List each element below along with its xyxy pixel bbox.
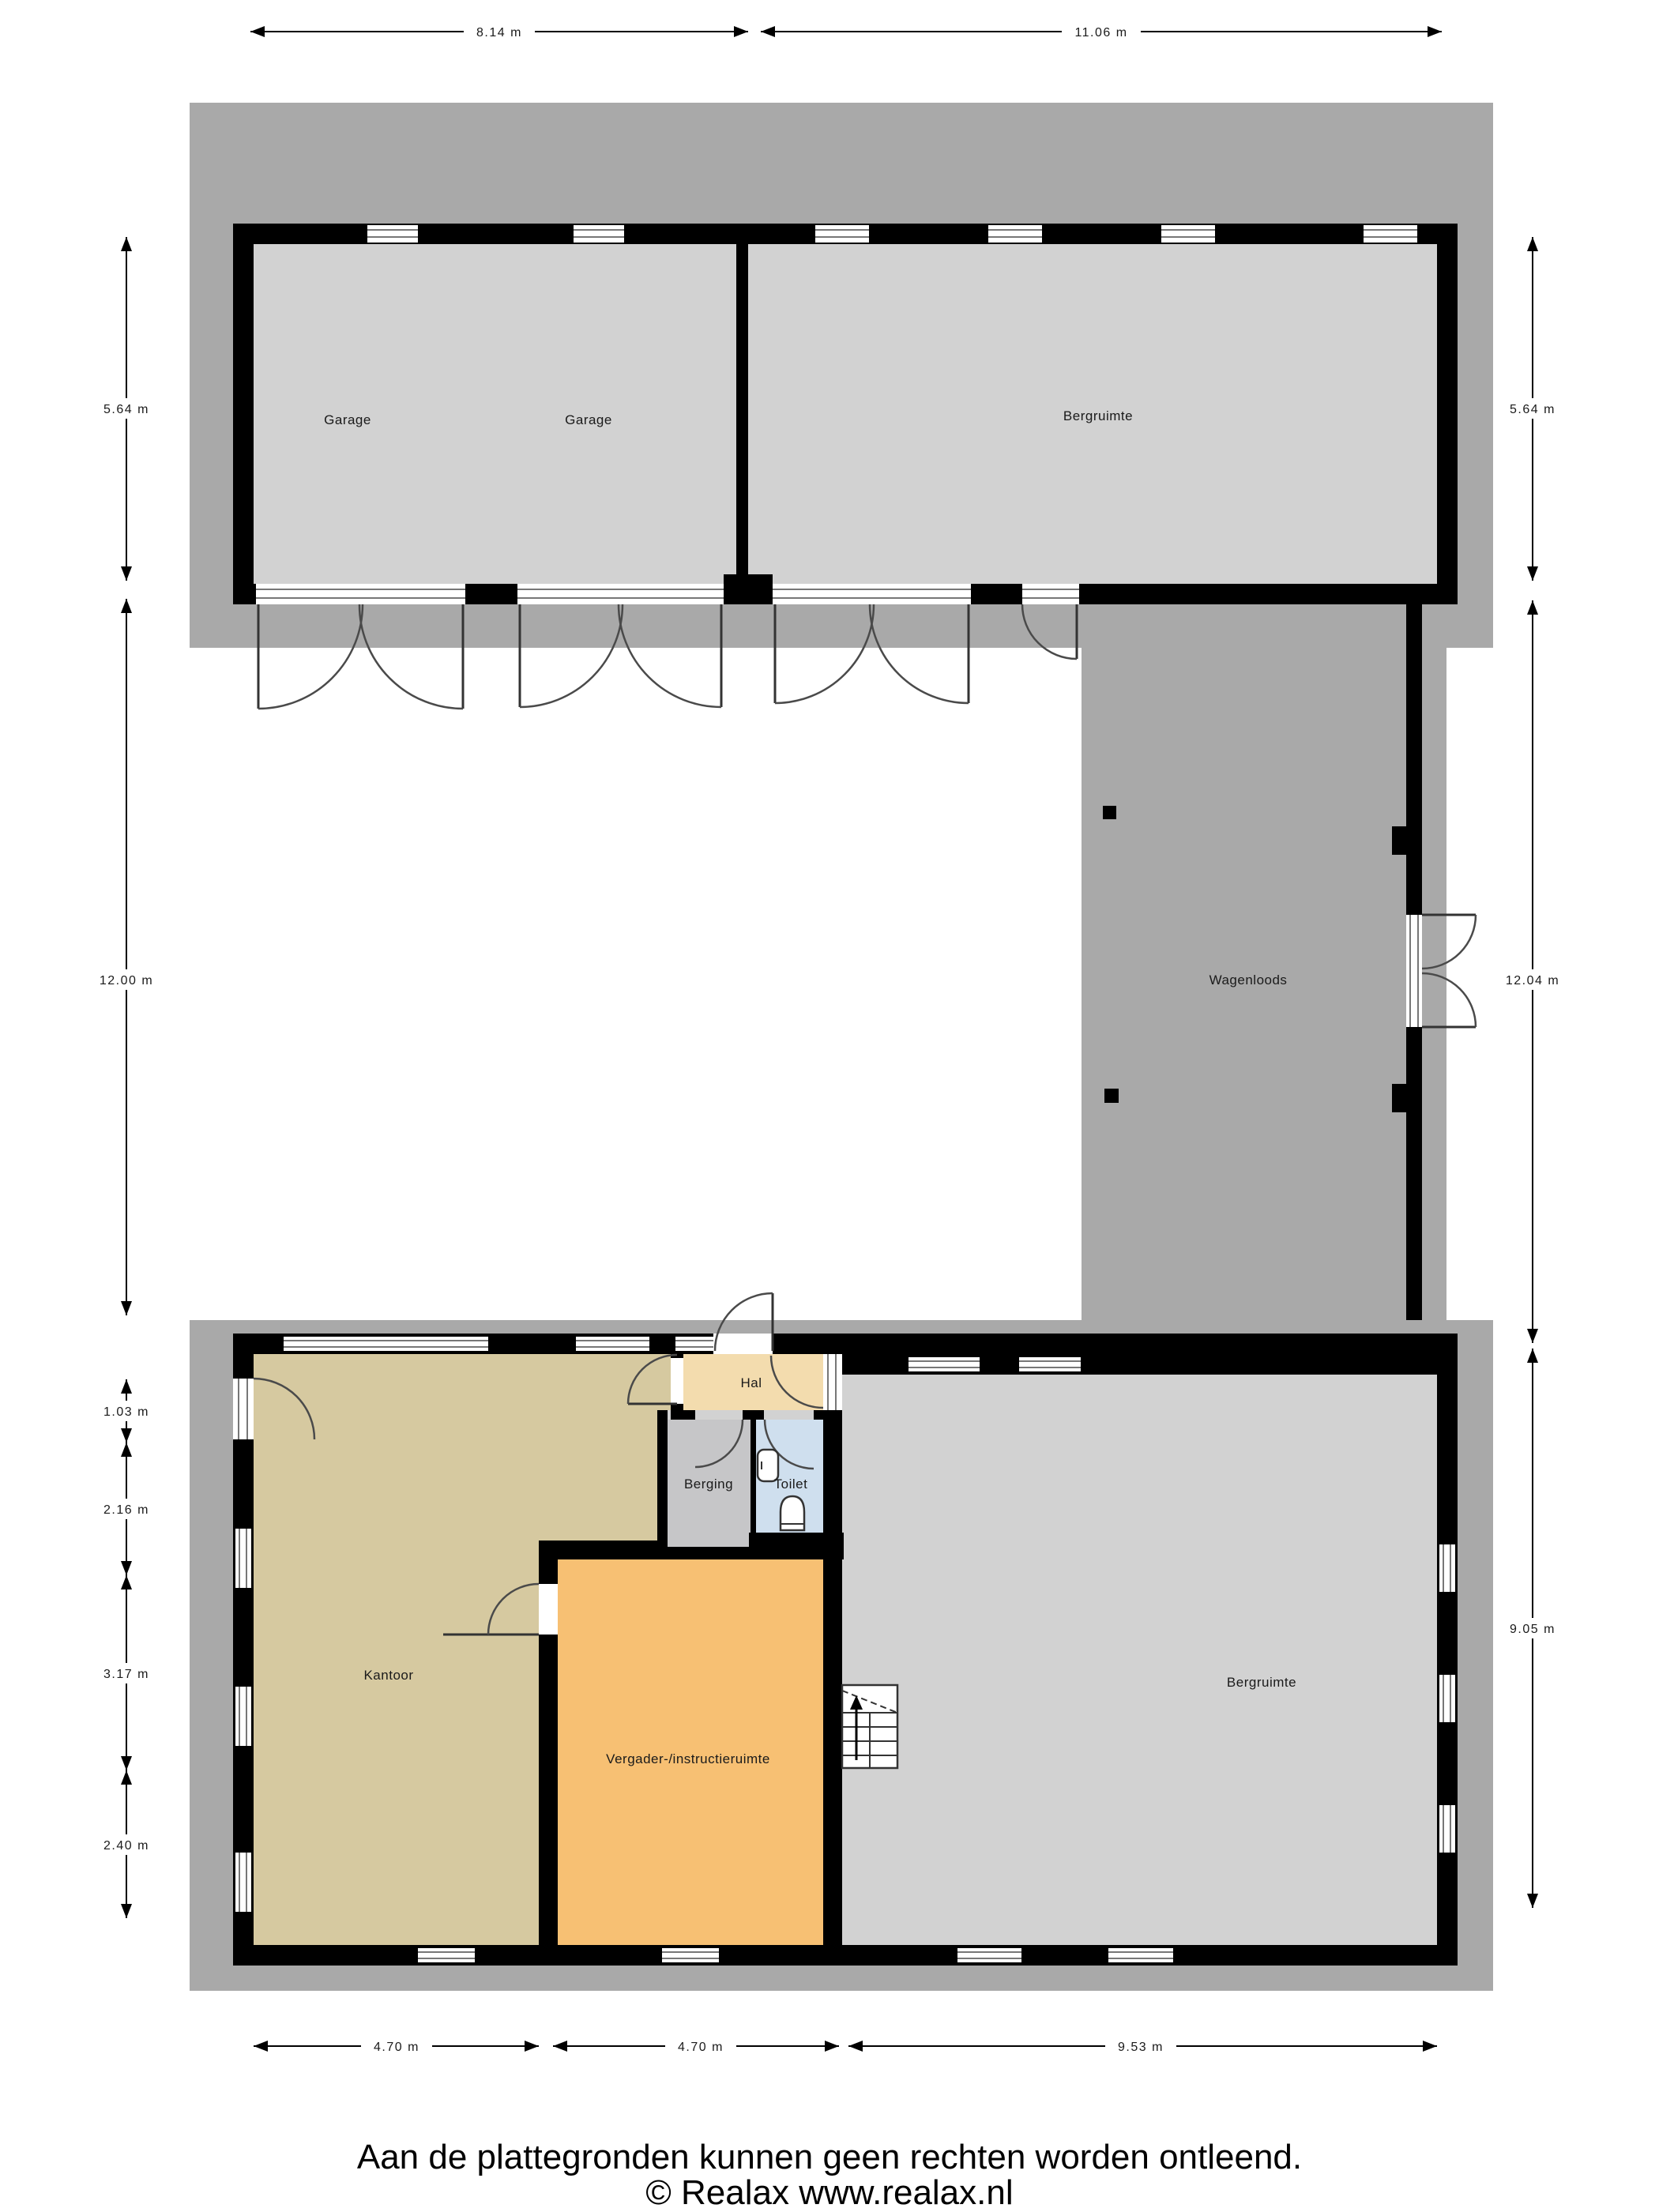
window xyxy=(367,225,418,243)
label-bergruimte-top: Bergruimte xyxy=(1063,408,1133,423)
window xyxy=(1019,1357,1081,1371)
dim-left-2: 12.00 m xyxy=(87,599,166,1315)
svg-text:3.17 m: 3.17 m xyxy=(103,1668,149,1681)
footer-disclaimer: Aan de plattegronden kunnen geen rechten… xyxy=(357,2138,1302,2176)
window xyxy=(1108,1948,1173,1962)
svg-text:4.70 m: 4.70 m xyxy=(374,2041,419,2054)
dim-right-3: 9.05 m xyxy=(1497,1349,1568,1908)
divider-wall-garage-bergruimte xyxy=(736,244,748,584)
dim-left-6: 2.40 m xyxy=(91,1770,162,1918)
dim-left-3: 1.03 m xyxy=(91,1379,162,1443)
toilet-bowl xyxy=(781,1496,804,1530)
svg-text:2.16 m: 2.16 m xyxy=(103,1503,149,1517)
floorplan-page: Garage Garage Bergruimte Wagenloods Hal … xyxy=(0,0,1659,2212)
dim-left-5: 3.17 m xyxy=(91,1575,162,1770)
dim-bottom-1: 4.70 m xyxy=(254,2036,539,2056)
svg-text:12.00 m: 12.00 m xyxy=(100,974,153,987)
pillar xyxy=(1103,806,1116,819)
dim-bottom-2: 4.70 m xyxy=(553,2036,839,2056)
label-kantoor: Kantoor xyxy=(363,1668,413,1683)
wagenloods-east-wall-lower xyxy=(1406,1027,1422,1320)
svg-text:9.05 m: 9.05 m xyxy=(1510,1623,1556,1636)
window xyxy=(908,1357,980,1371)
window xyxy=(418,1948,475,1962)
window xyxy=(957,1948,1021,1962)
window xyxy=(235,1853,251,1912)
window xyxy=(662,1948,719,1962)
svg-text:12.04 m: 12.04 m xyxy=(1506,974,1559,987)
svg-text:5.64 m: 5.64 m xyxy=(1510,403,1556,416)
dim-bottom-3: 9.53 m xyxy=(848,2036,1437,2056)
label-garage-right: Garage xyxy=(565,412,612,427)
window xyxy=(235,1529,251,1588)
window xyxy=(235,1687,251,1746)
window xyxy=(675,1337,713,1351)
divider-wall-foot xyxy=(724,574,773,604)
svg-text:2.40 m: 2.40 m xyxy=(103,1839,149,1853)
window xyxy=(1439,1805,1455,1853)
label-wagenloods: Wagenloods xyxy=(1209,972,1288,987)
window xyxy=(988,225,1042,243)
svg-text:9.53 m: 9.53 m xyxy=(1118,2041,1164,2054)
dim-left-4: 2.16 m xyxy=(91,1443,162,1575)
pillar xyxy=(1104,1089,1119,1103)
label-vergader: Vergader-/instructieruimte xyxy=(606,1751,770,1766)
dim-right-1: 5.64 m xyxy=(1497,237,1568,581)
wall-pillar xyxy=(1392,826,1422,855)
top-building-interior xyxy=(254,244,1437,584)
window xyxy=(576,1337,649,1351)
window xyxy=(574,225,624,243)
svg-text:8.14 m: 8.14 m xyxy=(476,26,522,39)
right-wall-windows xyxy=(1439,1544,1455,1853)
window xyxy=(284,1337,488,1351)
dim-right-2: 12.04 m xyxy=(1493,600,1572,1343)
window xyxy=(1439,1544,1455,1592)
svg-text:4.70 m: 4.70 m xyxy=(678,2041,724,2054)
glazed-partition xyxy=(823,1354,842,1410)
window xyxy=(1439,1675,1455,1722)
svg-text:11.06 m: 11.06 m xyxy=(1074,26,1127,39)
window xyxy=(1364,225,1417,243)
dim-top-2: 11.06 m xyxy=(761,21,1442,42)
window xyxy=(815,225,869,243)
svg-text:1.03 m: 1.03 m xyxy=(103,1405,149,1419)
wall-pillar xyxy=(1392,1084,1422,1112)
label-garage-left: Garage xyxy=(324,412,371,427)
dim-left-1: 5.64 m xyxy=(91,237,162,581)
label-berging: Berging xyxy=(684,1477,733,1492)
label-hal: Hal xyxy=(740,1375,762,1390)
svg-text:5.64 m: 5.64 m xyxy=(103,403,149,416)
terrain-band-wagenloods xyxy=(1082,604,1446,1320)
floorplan-drawing: Garage Garage Bergruimte Wagenloods Hal … xyxy=(0,0,1659,2212)
footer-copyright: © Realax www.realax.nl xyxy=(645,2173,1013,2212)
label-bergruimte-bottom: Bergruimte xyxy=(1227,1675,1296,1690)
label-toilet: Toilet xyxy=(774,1477,808,1492)
wagenloods-east-wall-upper xyxy=(1406,604,1422,915)
window xyxy=(1161,225,1215,243)
dim-top-1: 8.14 m xyxy=(250,21,748,42)
staircase xyxy=(842,1685,897,1768)
